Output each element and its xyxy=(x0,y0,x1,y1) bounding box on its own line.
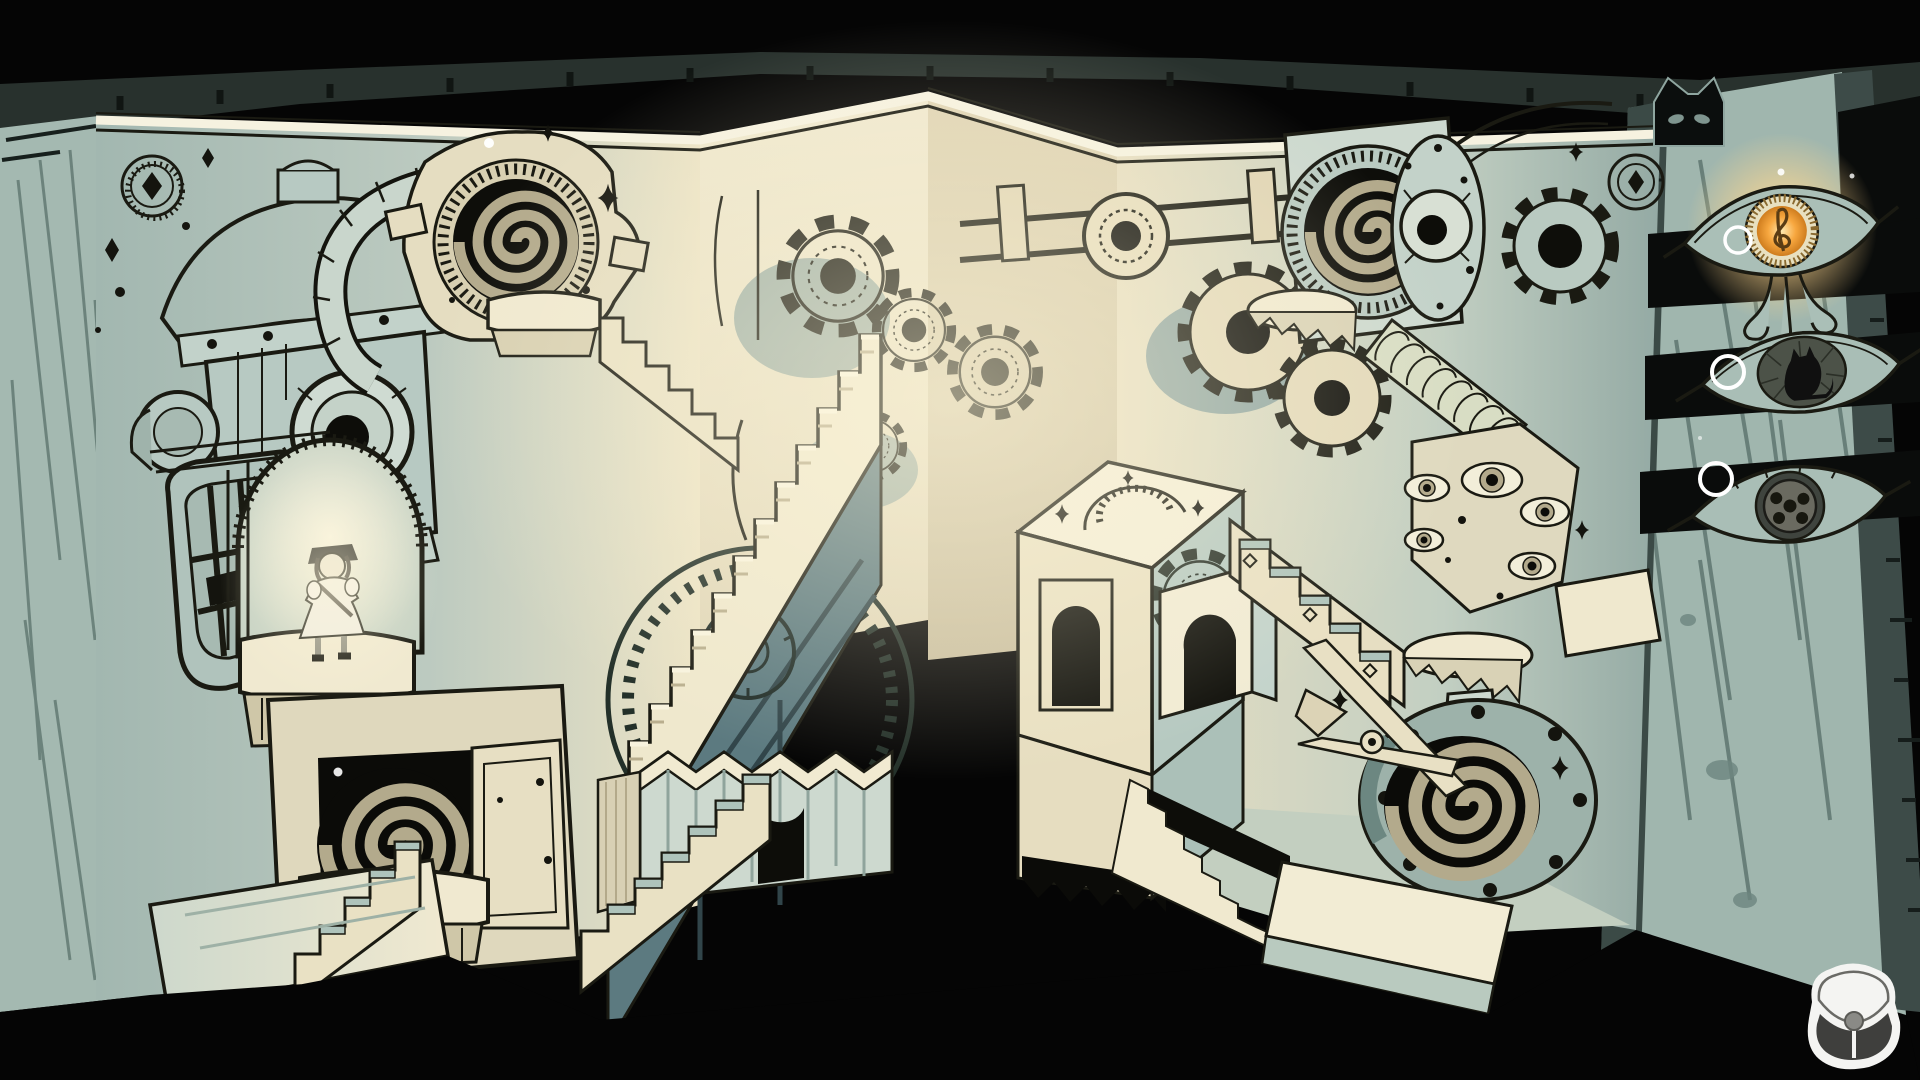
bag-button[interactable] xyxy=(1808,964,1900,1070)
game-screen xyxy=(0,0,1920,1080)
scene-canvas xyxy=(0,0,1920,1080)
